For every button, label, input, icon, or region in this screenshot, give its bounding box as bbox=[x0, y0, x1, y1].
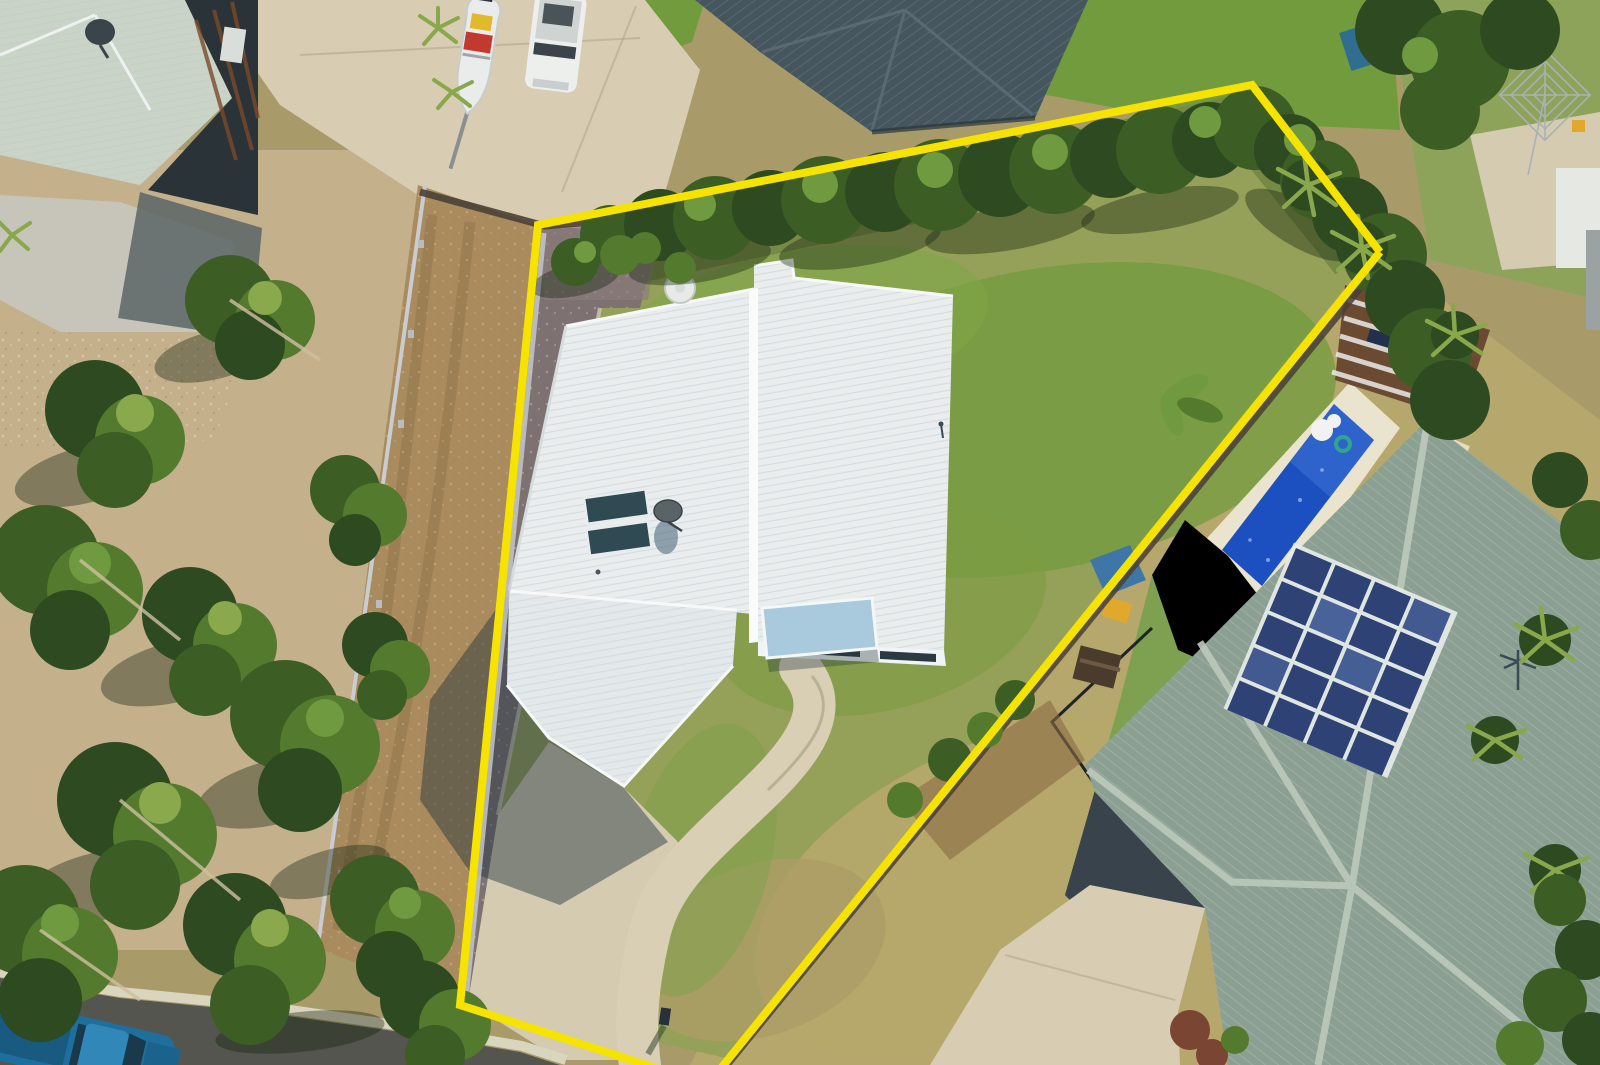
balcony-door bbox=[220, 27, 247, 64]
yellow-box bbox=[1572, 120, 1585, 132]
unicorn-float-head bbox=[1327, 414, 1341, 428]
building-shade bbox=[1586, 230, 1600, 330]
satellite-dish bbox=[85, 19, 115, 45]
roof-vent bbox=[596, 570, 601, 575]
tray-cargo bbox=[542, 3, 574, 27]
roof-texture bbox=[754, 260, 953, 650]
entry-awning bbox=[762, 598, 877, 658]
ridge-cap bbox=[749, 288, 758, 643]
aerial-photo bbox=[0, 0, 1600, 1065]
satellite-dish bbox=[654, 500, 682, 522]
aerial-photo-canvas bbox=[0, 0, 1600, 1065]
